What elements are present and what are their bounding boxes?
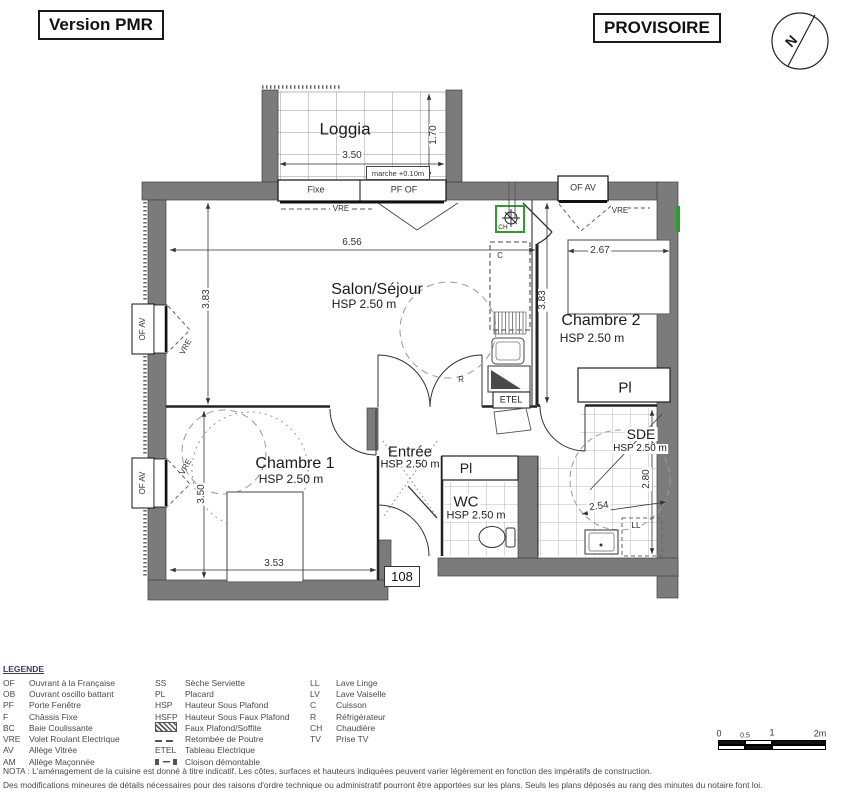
legend-row: HSPHauteur Sous Plafond (155, 700, 240, 711)
of-av-top-tag: OF AV (570, 184, 596, 193)
legend-label: Faux Plafond/Soffite (185, 723, 261, 733)
entree-label: Entrée (388, 445, 432, 460)
legend-row: CCuisson (310, 700, 386, 711)
faux-plafond-swatch-icon (155, 722, 177, 732)
legend-label: Hauteur Sous Plafond (185, 700, 268, 710)
legend-row: LVLave Vaiselle (310, 688, 386, 699)
placard-entree-label: Pl (460, 461, 472, 475)
legend-row: CHChaudière (310, 722, 386, 733)
dim-loggia-width: 3.50 (340, 151, 363, 161)
lave-linge-tag: LL (632, 522, 641, 530)
cloison-demontable-swatch-icon (155, 759, 177, 765)
loggia-label: Loggia (319, 121, 370, 138)
nota-line-1: NOTA : L'aménagement de la cuisine est d… (3, 766, 652, 776)
salon-hsp: HSP 2.50 m (332, 298, 396, 310)
placard-chambre2-label: Pl (618, 381, 631, 396)
legend-label: Retombée de Poutre (185, 734, 263, 744)
legend-abbr: VRE (3, 734, 29, 744)
legend-abbr: PL (155, 689, 185, 699)
green-wall-marker (676, 206, 680, 232)
chambre1-hsp: HSP 2.50 m (259, 473, 323, 485)
legend-row: LLLave Linge (310, 677, 386, 688)
sde-label: SDE (625, 427, 658, 441)
scale-bar (718, 740, 826, 750)
vre-chambre2-tag: VRE (612, 207, 628, 215)
legend-title: LEGENDE (3, 664, 44, 674)
dim-sde-height: 2.80 (642, 467, 652, 490)
legend-label: Lave Linge (336, 678, 378, 688)
legend-abbr: R (310, 712, 336, 722)
legend-label: Réfrigérateur (336, 712, 386, 722)
legend-label: Chaudière (336, 723, 375, 733)
legend-row: Retombée de Poutre (155, 733, 240, 744)
legend-abbr: LL (310, 678, 336, 688)
legend-label: Volet Roulant Electrique (29, 734, 120, 744)
dim-chambre2-width: 2.67 (588, 246, 611, 256)
scale-0: 0 (716, 730, 721, 739)
legend-abbr: HSFP (155, 712, 185, 722)
legend-label: Ouvrant à la Française (29, 678, 115, 688)
of-av-left1-tag: OF AV (139, 318, 147, 341)
retombee-poutre-swatch-icon (155, 740, 177, 742)
scale-2m: 2m (814, 730, 827, 739)
legend-abbr: ETEL (155, 745, 185, 755)
chambre2-hsp: HSP 2.50 m (560, 332, 624, 344)
legend-label: Sèche Serviette (185, 678, 245, 688)
legend-abbr: PF (3, 700, 29, 710)
floor-plan-drawing (0, 0, 857, 800)
legend-row: Faux Plafond/Soffite (155, 722, 240, 733)
legend-column-2: SSSèche Serviette PLPlacard HSPHauteur S… (155, 677, 240, 767)
legend-abbr: OB (3, 689, 29, 699)
legend-row: SSSèche Serviette (155, 677, 240, 688)
fixe-tag: Fixe (307, 186, 324, 195)
legend-label: Cuisson (336, 700, 367, 710)
legend-row: OFOuvrant à la Française (3, 677, 73, 688)
nota-line-2: Des modifications mineures de détails né… (3, 780, 763, 790)
legend-abbr: LV (310, 689, 336, 699)
legend-label: Châssis Fixe (29, 712, 78, 722)
chambre2-label: Chambre 2 (561, 313, 640, 329)
legend-abbr: HSP (155, 700, 185, 710)
vre-loggia-tag: VRE (333, 205, 349, 213)
dim-loggia-depth: 1.70 (429, 123, 439, 146)
legend-label: Ouvrant oscillo battant (29, 689, 114, 699)
legend-label: Placard (185, 689, 214, 699)
compass-icon (772, 13, 828, 69)
legend-abbr: AV (3, 745, 29, 755)
legend-abbr: F (3, 712, 29, 722)
version-pmr-box: Version PMR (38, 10, 164, 40)
legend-row: PLPlacard (155, 688, 240, 699)
salon-label: Salon/Séjour (331, 282, 423, 298)
dim-kitchen-height: 3.83 (538, 288, 548, 311)
etel-tag: ETEL (500, 396, 523, 405)
legend-label: Tableau Electrique (185, 745, 255, 755)
legend-abbr: BC (3, 723, 29, 733)
dim-chambre1-height: 3.50 (197, 482, 207, 505)
chaudiere-tag: CH (498, 225, 507, 232)
legend-label: Hauteur Sous Faux Plafond (185, 712, 289, 722)
dim-salon-height: 3.83 (202, 287, 212, 310)
legend-row: TVPrise TV (310, 733, 386, 744)
entree-hsp: HSP 2.50 m (380, 460, 439, 471)
legend-column-3: LLLave Linge LVLave Vaiselle CCuisson RR… (310, 677, 386, 745)
scale-1: 1 (769, 729, 774, 738)
wc-label: WC (452, 495, 481, 510)
legend-row: AVAllège Vitrée (3, 745, 73, 756)
dim-salon-width: 6.56 (340, 238, 363, 248)
legend-abbr: C (310, 700, 336, 710)
legend-abbr: SS (155, 678, 185, 688)
wc-hsp: HSP 2.50 m (444, 511, 507, 522)
legend-label: Baie Coulissante (29, 723, 93, 733)
legend-column-1: OFOuvrant à la Française OBOuvrant oscil… (3, 677, 73, 767)
legend-row: BCBaie Coulissante (3, 722, 73, 733)
refrigerateur-tag: R (458, 376, 464, 384)
sde-hsp: HSP 2.50 m (612, 444, 668, 454)
legend-label: Prise TV (336, 734, 368, 744)
floor-plan-page: Version PMR PROVISOIRE N Loggia Salon/Sé… (0, 0, 857, 800)
pf-of-tag: PF OF (391, 186, 418, 195)
provisoire-box: PROVISOIRE (593, 13, 721, 43)
chambre1-label: Chambre 1 (255, 456, 334, 472)
legend-abbr: CH (310, 723, 336, 733)
legend-label: Allège Vitrée (29, 745, 77, 755)
legend: LEGENDE OFOuvrant à la Française OBOuvra… (3, 664, 44, 674)
of-av-left2-tag: OF AV (139, 472, 147, 495)
legend-row: VREVolet Roulant Electrique (3, 733, 73, 744)
marche-note: marche +0.10m (366, 166, 430, 180)
cuisson-tag: C (497, 252, 503, 260)
legend-row: PFPorte Fenêtre (3, 700, 73, 711)
legend-label: Porte Fenêtre (29, 700, 81, 710)
legend-row: RRéfrigérateur (310, 711, 386, 722)
legend-abbr: TV (310, 734, 336, 744)
unit-number: 108 (384, 566, 420, 587)
dim-chambre1-width: 3.53 (262, 559, 285, 569)
legend-abbr: OF (3, 678, 29, 688)
scale-0-5: 0.5 (740, 733, 750, 740)
legend-row: HSFPHauteur Sous Faux Plafond (155, 711, 240, 722)
legend-row: FChâssis Fixe (3, 711, 73, 722)
legend-row: OBOuvrant oscillo battant (3, 688, 73, 699)
legend-row: ETELTableau Electrique (155, 745, 240, 756)
legend-label: Lave Vaiselle (336, 689, 386, 699)
